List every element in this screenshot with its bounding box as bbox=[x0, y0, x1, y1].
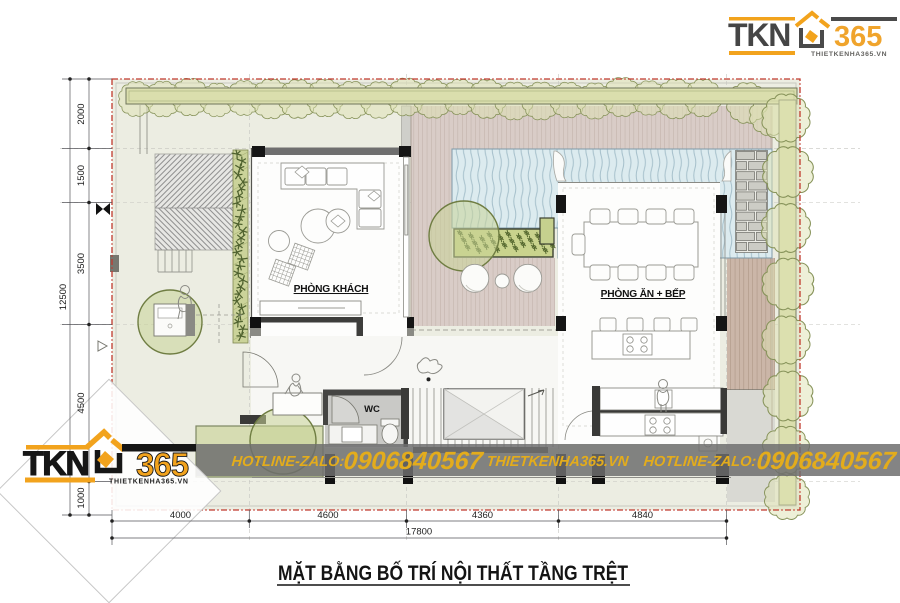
svg-text:3500: 3500 bbox=[76, 253, 87, 274]
svg-text:PHÒNG KHÁCH: PHÒNG KHÁCH bbox=[294, 282, 369, 295]
svg-text:HOTLINE-ZALO:: HOTLINE-ZALO: bbox=[231, 454, 345, 470]
svg-text:HOTLINE-ZALO:: HOTLINE-ZALO: bbox=[643, 454, 757, 470]
svg-text:1500: 1500 bbox=[76, 165, 87, 186]
svg-text:365: 365 bbox=[136, 446, 189, 483]
svg-text:4000: 4000 bbox=[170, 510, 191, 521]
svg-text:PHÒNG ĂN + BẾP: PHÒNG ĂN + BẾP bbox=[601, 287, 686, 300]
svg-text:12500: 12500 bbox=[58, 284, 69, 310]
svg-text:1000: 1000 bbox=[76, 487, 87, 508]
svg-text:17800: 17800 bbox=[406, 527, 432, 538]
svg-text:TKN: TKN bbox=[23, 445, 88, 483]
svg-text:THIETKENHA365.VN: THIETKENHA365.VN bbox=[486, 454, 630, 470]
svg-text:4600: 4600 bbox=[317, 510, 338, 521]
svg-text:365: 365 bbox=[834, 21, 882, 53]
svg-text:TKN: TKN bbox=[728, 17, 790, 53]
svg-text:4500: 4500 bbox=[76, 392, 87, 413]
svg-text:2000: 2000 bbox=[76, 103, 87, 124]
svg-text:THIETKENHA365.VN: THIETKENHA365.VN bbox=[811, 51, 887, 58]
svg-text:4360: 4360 bbox=[472, 510, 493, 521]
svg-text:THIETKENHA365.VN: THIETKENHA365.VN bbox=[109, 479, 189, 486]
svg-text:0906840567: 0906840567 bbox=[755, 447, 897, 475]
svg-text:MẶT BẰNG BỐ TRÍ NỘI THẤT TẦNG: MẶT BẰNG BỐ TRÍ NỘI THẤT TẦNG TRỆT bbox=[278, 561, 628, 585]
svg-text:WC: WC bbox=[364, 404, 380, 415]
svg-text:4840: 4840 bbox=[632, 510, 653, 521]
svg-text:0906840567: 0906840567 bbox=[342, 447, 484, 475]
